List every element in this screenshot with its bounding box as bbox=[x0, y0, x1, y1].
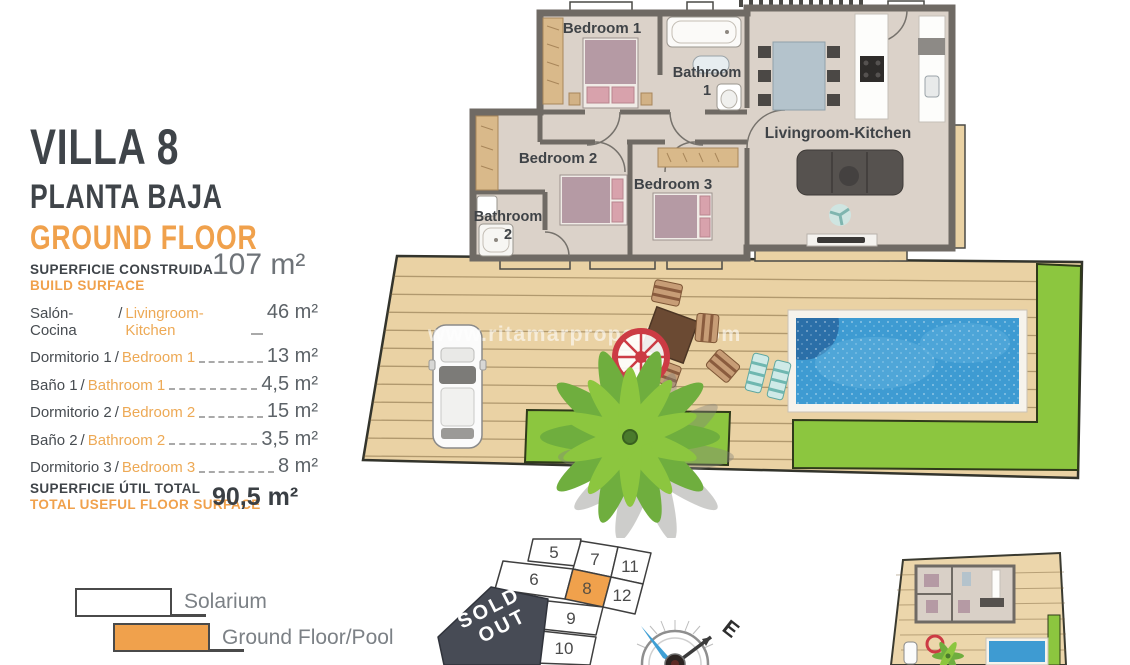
sink bbox=[925, 76, 939, 97]
fridge bbox=[918, 38, 945, 55]
room-name-es: Salón-Cocina bbox=[30, 306, 115, 339]
kitchen-counter bbox=[918, 16, 945, 122]
total-label-es: SUPERFICIE ÚTIL TOTAL bbox=[30, 481, 200, 496]
room-label-bathroom1-line2: 1 bbox=[703, 83, 711, 99]
separator: / bbox=[81, 433, 85, 450]
plot-number: 9 bbox=[566, 609, 575, 628]
toilet bbox=[717, 84, 741, 110]
nightstand bbox=[641, 93, 652, 105]
dotted-leader bbox=[169, 443, 257, 445]
room-label-bathroom2-line1: Bathroom bbox=[474, 209, 542, 225]
plot-number: 12 bbox=[613, 586, 632, 605]
room-label-bedroom3: Bedroom 3 bbox=[634, 176, 712, 193]
bed bbox=[560, 175, 627, 225]
room-row: Dormitorio 2/Bedroom 2 15 m² bbox=[30, 403, 318, 422]
room-name-es: Baño 1 bbox=[30, 378, 78, 395]
plot-number: 10 bbox=[555, 639, 574, 658]
tv-console bbox=[807, 234, 877, 246]
nightstand bbox=[569, 93, 580, 105]
separator: / bbox=[115, 460, 119, 477]
room-row: Salón-Cocina/Livingroom-Kitchen 46 m² bbox=[30, 304, 318, 339]
room-name-es: Dormitorio 2 bbox=[30, 405, 112, 422]
terrace-furniture-graphic bbox=[355, 248, 1095, 538]
kitchen-island bbox=[855, 14, 888, 119]
plot-number: 6 bbox=[529, 570, 538, 589]
ceiling-fan-icon bbox=[829, 204, 851, 226]
room-label-living: Livingroom-Kitchen bbox=[765, 125, 911, 142]
floorplan-page: VILLA 8 PLANTA BAJA GROUND FLOOR SUPERFI… bbox=[0, 0, 1130, 665]
patio-chair bbox=[651, 279, 683, 306]
sun-loungers bbox=[745, 353, 792, 401]
room-label-bedroom1: Bedroom 1 bbox=[563, 20, 641, 37]
room-area-value: 4,5 m² bbox=[261, 376, 318, 393]
mini-pool bbox=[986, 638, 1048, 665]
legend-tail bbox=[172, 614, 206, 617]
room-row: Baño 2/Bathroom 2 3,5 m² bbox=[30, 431, 318, 450]
dining-table bbox=[758, 42, 840, 110]
bed bbox=[583, 38, 638, 108]
total-value: 90,5 m² bbox=[212, 483, 298, 512]
room-row: Baño 1/Bathroom 1 4,5 m² bbox=[30, 376, 318, 395]
room-row: Dormitorio 3/Bedroom 3 8 m² bbox=[30, 458, 318, 477]
room-area-value: 8 m² bbox=[278, 458, 318, 475]
room-name-en: Livingroom-Kitchen bbox=[125, 306, 246, 339]
room-name-es: Baño 2 bbox=[30, 433, 78, 450]
room-name-en: Bedroom 3 bbox=[122, 460, 195, 477]
room-name-en: Bathroom 1 bbox=[88, 378, 166, 395]
room-name-es: Dormitorio 3 bbox=[30, 460, 112, 477]
room-name-en: Bedroom 2 bbox=[122, 405, 195, 422]
wardrobe bbox=[476, 116, 498, 190]
room-row: Dormitorio 1/Bedroom 1 13 m² bbox=[30, 348, 318, 367]
room-area-value: 3,5 m² bbox=[261, 431, 318, 448]
build-surface-label-en: BUILD SURFACE bbox=[30, 278, 145, 293]
legend-label-solarium: Solarium bbox=[184, 590, 267, 614]
compass-east-label: E bbox=[718, 616, 743, 643]
floor-subtitle-es: PLANTA BAJA bbox=[30, 178, 277, 217]
villa-title: VILLA 8 bbox=[30, 118, 221, 176]
dotted-leader bbox=[169, 388, 257, 390]
room-name-en: Bathroom 2 bbox=[88, 433, 166, 450]
room-name-en: Bedroom 1 bbox=[122, 350, 195, 367]
separator: / bbox=[115, 350, 119, 367]
room-area-list: Salón-Cocina/Livingroom-Kitchen 46 m² Do… bbox=[30, 304, 318, 486]
room-name-es: Dormitorio 1 bbox=[30, 350, 112, 367]
legend-label-groundfloor: Ground Floor/Pool bbox=[222, 626, 394, 650]
plot-number: 11 bbox=[621, 557, 639, 576]
plot-number-highlighted: 8 bbox=[582, 579, 591, 598]
mini-house bbox=[916, 566, 1014, 622]
compass-icon: E bbox=[605, 606, 750, 665]
room-label-bathroom2-line2: 2 bbox=[504, 227, 512, 243]
separator: / bbox=[118, 306, 122, 323]
patio-chair bbox=[695, 313, 719, 343]
mini-grass bbox=[1048, 615, 1060, 665]
build-surface-value: 107 m² bbox=[212, 248, 305, 282]
room-label-bedroom2: Bedroom 2 bbox=[519, 150, 597, 167]
build-surface-label-es: SUPERFICIE CONSTRUIDA bbox=[30, 262, 213, 277]
plot-number: 5 bbox=[549, 543, 558, 562]
room-area-value: 15 m² bbox=[267, 403, 318, 420]
wardrobe bbox=[543, 18, 563, 104]
room-area-value: 13 m² bbox=[267, 348, 318, 365]
bed bbox=[653, 193, 712, 240]
separator: / bbox=[81, 378, 85, 395]
legend-swatch-solarium bbox=[75, 588, 172, 617]
dotted-leader bbox=[199, 416, 263, 418]
floorplan-graphic: Bedroom 1 Bathroom 1 Bedroom 2 Bedroom 3… bbox=[455, 0, 970, 278]
dotted-leader bbox=[199, 361, 263, 363]
room-label-bathroom1-line1: Bathroom bbox=[673, 65, 741, 81]
dotted-leader bbox=[251, 333, 263, 335]
sofa bbox=[797, 150, 903, 195]
wardrobe bbox=[658, 148, 738, 167]
patio-chair bbox=[705, 349, 741, 384]
mini-site-plan bbox=[888, 550, 1078, 665]
villa-title-text: VILLA 8 bbox=[30, 118, 179, 176]
plot-number: 7 bbox=[590, 550, 599, 569]
room-area-value: 46 m² bbox=[267, 304, 318, 321]
stove bbox=[860, 56, 884, 82]
legend-swatch-groundfloor bbox=[113, 623, 210, 652]
dotted-leader bbox=[199, 471, 274, 473]
mini-car bbox=[904, 642, 917, 664]
separator: / bbox=[115, 405, 119, 422]
